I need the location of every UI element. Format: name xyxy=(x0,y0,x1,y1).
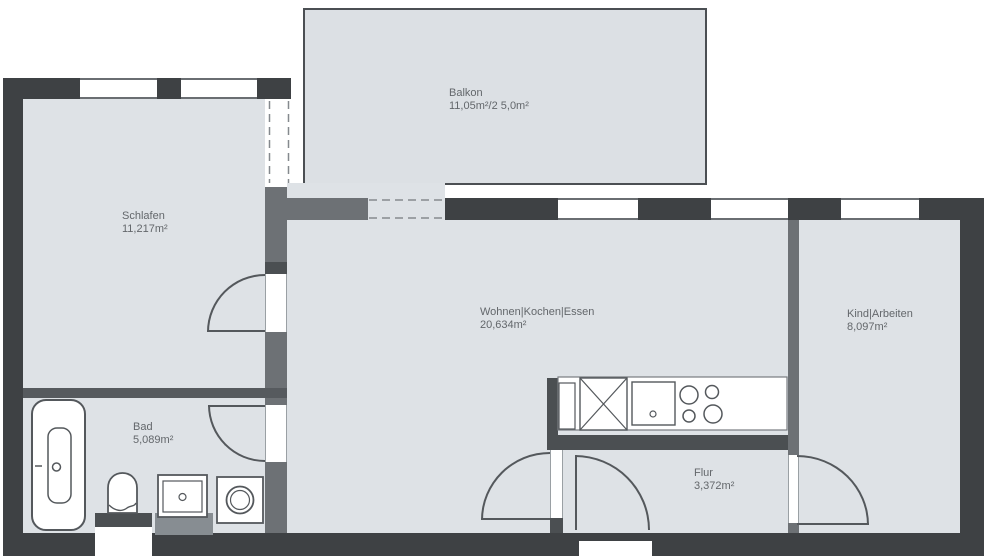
kitchen-sink-icon xyxy=(632,382,675,425)
room-name: Balkon xyxy=(449,87,529,100)
room-area: 11,05m²/2 5,0m² xyxy=(449,100,529,113)
balcony-partition-dashed xyxy=(270,101,289,183)
room-area: 11,217m² xyxy=(122,223,168,236)
fixtures-layer xyxy=(0,0,984,556)
refrigerator-icon xyxy=(580,378,627,430)
floor-plan: Balkon 11,05m²/2 5,0m² Schlafen 11,217m²… xyxy=(0,0,984,556)
room-name: Schlafen xyxy=(122,210,168,223)
label-bad: Bad 5,089m² xyxy=(133,421,173,447)
room-area: 3,372m² xyxy=(694,480,734,493)
room-area: 5,089m² xyxy=(133,434,173,447)
washbasin-icon xyxy=(158,475,207,517)
toilet-icon xyxy=(108,473,137,513)
room-name: Bad xyxy=(133,421,173,434)
kitchen-cabinet xyxy=(559,383,575,429)
label-wohnen: Wohnen|Kochen|Essen 20,634m² xyxy=(480,306,594,332)
balcony-door-dashed xyxy=(369,200,445,218)
label-flur: Flur 3,372m² xyxy=(694,467,734,493)
bathtub-icon xyxy=(32,400,85,530)
room-area: 8,097m² xyxy=(847,321,913,334)
label-schlafen: Schlafen 11,217m² xyxy=(122,210,168,236)
washing-machine-icon xyxy=(217,477,263,523)
room-area: 20,634m² xyxy=(480,319,594,332)
room-name: Flur xyxy=(694,467,734,480)
room-name: Kind|Arbeiten xyxy=(847,308,913,321)
label-kind: Kind|Arbeiten 8,097m² xyxy=(847,308,913,334)
label-balkon: Balkon 11,05m²/2 5,0m² xyxy=(449,87,529,113)
room-name: Wohnen|Kochen|Essen xyxy=(480,306,594,319)
